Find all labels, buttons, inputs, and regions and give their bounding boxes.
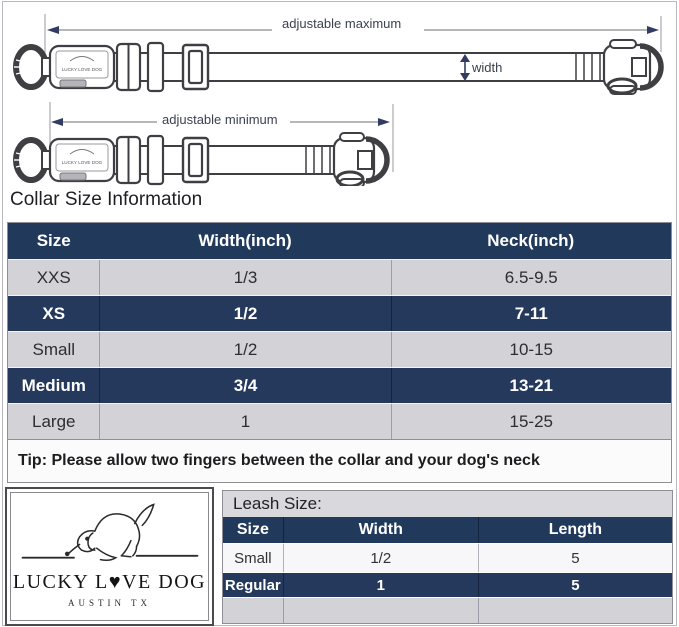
leash-size-table: Leash Size: Size Width Length Small 1/2 … [222, 490, 673, 624]
cell-width: 1/3 [99, 260, 390, 295]
brand-logo: LUCKY L♥VE DOG AUSTIN TX [5, 487, 214, 626]
collar-size-table: Size Width(inch) Neck(inch) XXS 1/3 6.5-… [7, 222, 672, 483]
cell-size: Large [8, 404, 99, 439]
cell-size: Regular [223, 573, 283, 597]
cell-neck: 13-21 [391, 368, 671, 403]
cell-size: Small [223, 544, 283, 572]
fit-tip-text: Tip: Please allow two fingers between th… [8, 439, 671, 482]
table-row: XXS 1/3 6.5-9.5 [8, 259, 671, 295]
adjustable-minimum-label: adjustable minimum [162, 112, 278, 127]
leash-header-length: Length [478, 517, 672, 543]
collar-header-width: Width(inch) [99, 223, 390, 259]
table-row: Large 1 15-25 [8, 403, 671, 439]
cell-width: 3/4 [99, 368, 390, 403]
collar-header-neck: Neck(inch) [391, 223, 671, 259]
collar-maximum-illustration [14, 40, 661, 94]
leash-header-width: Width [283, 517, 478, 543]
cell-size: Medium [8, 368, 99, 403]
brand-location-text: AUSTIN TX [68, 598, 151, 608]
cell-size: XS [8, 296, 99, 331]
leash-size-title: Leash Size: [223, 491, 672, 517]
collar-table-header-row: Size Width(inch) Neck(inch) [8, 223, 671, 259]
collar-minimum-illustration [14, 133, 387, 186]
cell-width: 1/2 [99, 332, 390, 367]
cell-empty [478, 598, 672, 623]
table-row: Medium 3/4 13-21 [8, 367, 671, 403]
table-row: Small 1/2 10-15 [8, 331, 671, 367]
cell-empty [283, 598, 478, 623]
cell-empty [223, 598, 283, 623]
leash-header-size: Size [223, 517, 283, 543]
cell-length: 5 [478, 573, 672, 597]
cell-size: XXS [8, 260, 99, 295]
cell-size: Small [8, 332, 99, 367]
table-row: XS 1/2 7-11 [8, 295, 671, 331]
table-row: Small 1/2 5 [223, 543, 672, 572]
cell-neck: 6.5-9.5 [391, 260, 671, 295]
empty-row [223, 597, 672, 623]
logo-inner-frame: LUCKY L♥VE DOG AUSTIN TX [10, 492, 209, 621]
product-size-chart-image: LUCKY LOVE DOG [0, 0, 679, 627]
cell-width: 1/2 [99, 296, 390, 331]
collar-measurement-diagram: LUCKY LOVE DOG [0, 0, 679, 186]
leash-table-header-row: Size Width Length [223, 517, 672, 543]
cell-width: 1 [99, 404, 390, 439]
cell-length: 5 [478, 544, 672, 572]
cell-width: 1 [283, 573, 478, 597]
adjustable-maximum-label: adjustable maximum [282, 16, 401, 31]
width-label: width [472, 60, 502, 75]
collar-header-size: Size [8, 223, 99, 259]
brand-name-text: LUCKY L♥VE DOG [13, 572, 206, 592]
collar-size-title: Collar Size Information [10, 189, 202, 211]
cell-neck: 15-25 [391, 404, 671, 439]
cell-neck: 7-11 [391, 296, 671, 331]
dog-illustration-icon [15, 495, 205, 571]
table-row: Regular 1 5 [223, 572, 672, 597]
cell-width: 1/2 [283, 544, 478, 572]
cell-neck: 10-15 [391, 332, 671, 367]
